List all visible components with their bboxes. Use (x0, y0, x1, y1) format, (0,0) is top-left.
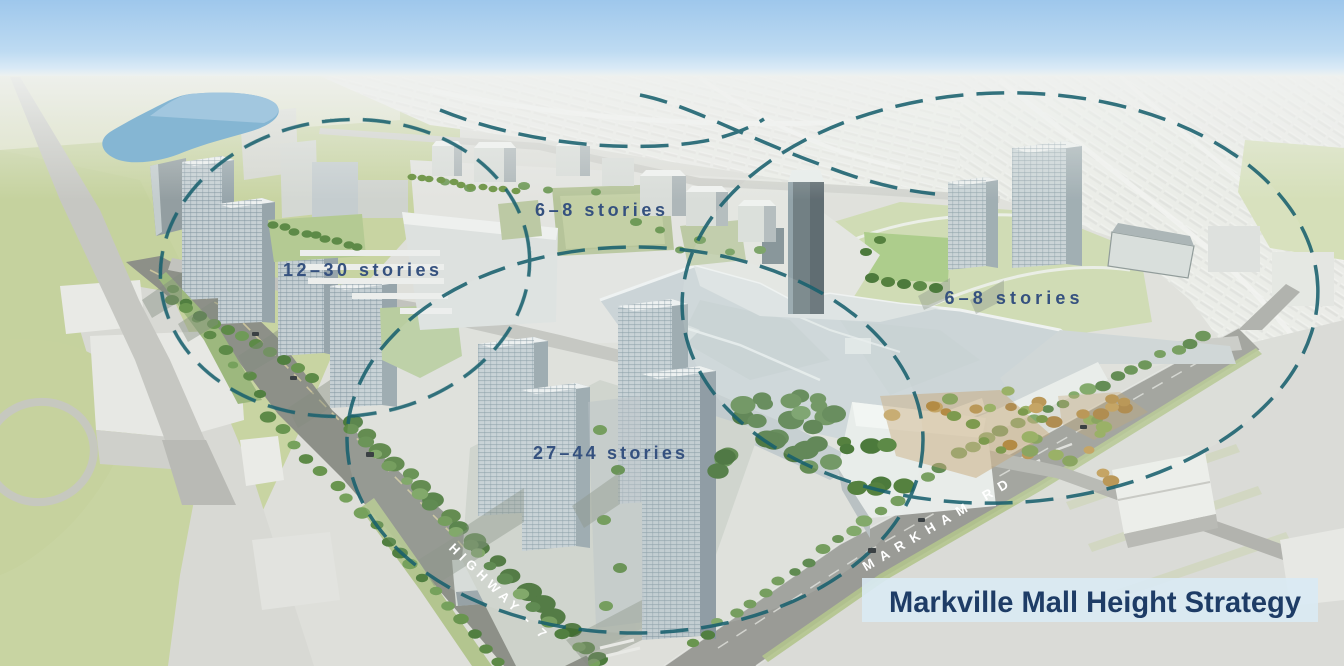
svg-text:12–30 stories: 12–30 stories (283, 260, 441, 280)
svg-text:27–44 stories: 27–44 stories (533, 443, 687, 463)
svg-text:6–8 stories: 6–8 stories (945, 288, 1082, 308)
svg-text:6–8 stories: 6–8 stories (535, 200, 667, 220)
svg-text:Markville Mall Height Strategy: Markville Mall Height Strategy (889, 586, 1301, 619)
